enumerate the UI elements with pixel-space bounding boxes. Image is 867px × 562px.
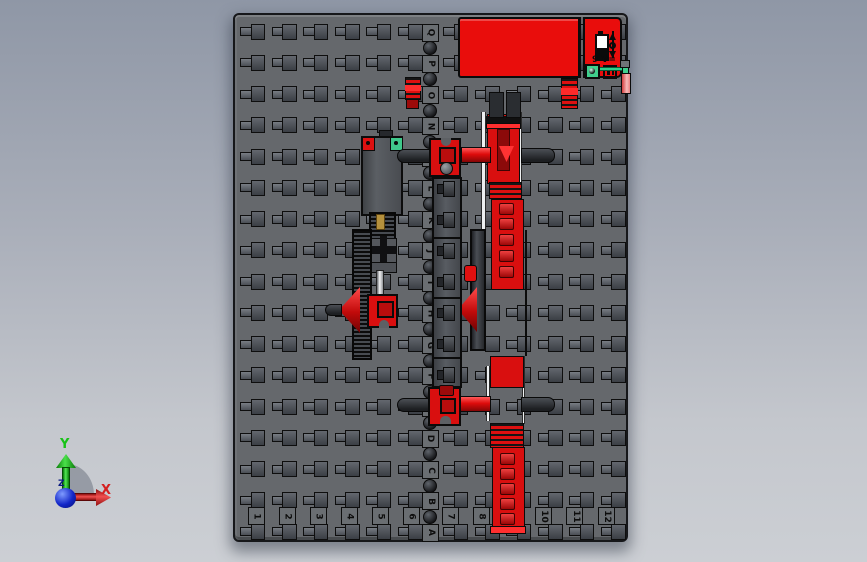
axle-red-top[interactable]	[461, 147, 491, 163]
plate-slot	[443, 87, 468, 102]
plate-slot	[303, 274, 328, 289]
plate-slot	[335, 212, 360, 227]
column-label-tile: 2	[279, 507, 296, 525]
plate-slot	[601, 180, 626, 195]
y-axis-label: Y	[60, 438, 69, 451]
plate-slot	[335, 462, 360, 477]
beam-stud	[443, 181, 455, 197]
grid-hole	[423, 479, 437, 493]
plate-slot	[303, 462, 328, 477]
strip-gear-lower[interactable]	[490, 423, 524, 448]
plate-slot	[569, 337, 594, 352]
plate-slot	[601, 399, 626, 414]
plate-slot	[569, 462, 594, 477]
plate-slot	[538, 493, 563, 508]
plate-slot	[601, 368, 626, 383]
plate-slot	[538, 87, 563, 102]
plate-slot	[335, 493, 360, 508]
row-label-tile: C	[422, 461, 439, 479]
plate-slot	[335, 399, 360, 414]
plate-slot	[569, 243, 594, 258]
plate-slot	[272, 24, 297, 39]
plate-slot	[272, 274, 297, 289]
rack-stud	[500, 483, 515, 495]
plate-slot	[538, 337, 563, 352]
plate-slot	[601, 118, 626, 133]
row-label-tile: A	[422, 524, 439, 542]
bearing-block-bottom[interactable]	[428, 387, 461, 426]
strip-end-bar[interactable]	[490, 526, 526, 534]
plate-slot	[538, 462, 563, 477]
plate-slot	[240, 87, 265, 102]
plate-slot	[240, 212, 265, 227]
beam-stud	[443, 243, 455, 259]
plate-slot	[272, 87, 297, 102]
axle-bottom-right[interactable]	[521, 397, 555, 412]
plate-slot	[272, 118, 297, 133]
plate-slot	[398, 118, 423, 133]
plate-slot	[272, 399, 297, 414]
plate-slot	[335, 430, 360, 445]
plate-slot	[366, 462, 391, 477]
plate-slot	[538, 212, 563, 227]
plate-slot	[272, 149, 297, 164]
plate-slot	[538, 180, 563, 195]
girder-edge-line	[525, 230, 527, 356]
plate-slot	[538, 274, 563, 289]
plate-slot	[303, 337, 328, 352]
plate-slot	[601, 462, 626, 477]
plate-slot	[335, 24, 360, 39]
rack-stud	[500, 453, 515, 465]
strip-gear-upper[interactable]	[489, 182, 522, 199]
rack-stud	[500, 468, 515, 480]
plate-slot	[443, 462, 468, 477]
plate-slot	[303, 493, 328, 508]
plate-slot	[272, 212, 297, 227]
plate-slot	[240, 243, 265, 258]
plate-slot	[398, 368, 423, 383]
grid-hole	[423, 104, 437, 118]
plate-slot	[601, 243, 626, 258]
plate-slot	[569, 180, 594, 195]
axle-red-bottom[interactable]	[460, 396, 491, 412]
plate-slot	[443, 118, 468, 133]
z-axis-sphere[interactable]	[55, 488, 76, 508]
plate-slot	[240, 462, 265, 477]
beam-stud	[443, 336, 455, 352]
plate-slot	[366, 24, 391, 39]
plate-slot	[335, 149, 360, 164]
plate-slot	[240, 368, 265, 383]
plate-slot	[272, 462, 297, 477]
plate-slot	[335, 118, 360, 133]
plate-slot	[398, 274, 423, 289]
plate-slot	[398, 305, 423, 320]
plate-slot	[601, 149, 626, 164]
plate-slot	[538, 243, 563, 258]
plate-slot	[303, 212, 328, 227]
plate-slot	[303, 524, 328, 539]
coupling-brass	[376, 214, 385, 230]
plate-slot	[240, 337, 265, 352]
column-label-tile: 1	[248, 507, 265, 525]
plate-slot	[303, 55, 328, 70]
plate-slot	[240, 180, 265, 195]
plate-slot	[366, 493, 391, 508]
plate-slot	[272, 337, 297, 352]
grid-hole	[423, 510, 437, 524]
plate-slot	[240, 118, 265, 133]
disc-gear-edge[interactable]	[470, 229, 486, 351]
plate-slot	[272, 368, 297, 383]
plate-slot	[398, 337, 423, 352]
column-label-tile: 10	[535, 507, 552, 525]
plate-slot	[240, 55, 265, 70]
column-label-tile: 4	[341, 507, 358, 525]
plate-slot	[538, 118, 563, 133]
row-label-tile: D	[422, 430, 439, 448]
column-label-tile: 11	[566, 507, 583, 525]
plate-slot	[601, 524, 626, 539]
plate-slot	[506, 305, 531, 320]
rack-stud	[500, 498, 515, 510]
plate-slot	[569, 118, 594, 133]
plate-slot	[272, 493, 297, 508]
plate-slot	[601, 337, 626, 352]
top-beam-left[interactable]	[489, 92, 504, 118]
row-label-tile: N	[422, 117, 439, 135]
plate-slot	[398, 430, 423, 445]
plate-slot	[303, 243, 328, 258]
plate-slot	[240, 399, 265, 414]
plate-slot	[303, 87, 328, 102]
plate-slot	[538, 524, 563, 539]
rack-stud	[499, 203, 514, 215]
small-gear-band	[405, 85, 421, 91]
plate-slot	[366, 368, 391, 383]
plate-slot	[366, 87, 391, 102]
column-label-tile: 6	[403, 507, 420, 525]
plate-slot	[240, 493, 265, 508]
plate-slot	[240, 274, 265, 289]
plate-slot	[601, 305, 626, 320]
beam-stud	[443, 274, 455, 290]
battery-box-divider	[578, 17, 581, 78]
plate-slot	[303, 368, 328, 383]
axle-bottom-left[interactable]	[397, 398, 429, 412]
rack-stud	[500, 513, 515, 525]
plate-slot	[366, 55, 391, 70]
plate-slot	[569, 368, 594, 383]
plate-slot	[569, 305, 594, 320]
plate-slot	[335, 55, 360, 70]
rack-strip-lowermid[interactable]	[490, 356, 524, 388]
plate-slot	[240, 305, 265, 320]
plate-slot	[272, 524, 297, 539]
plate-slot	[335, 368, 360, 383]
axle-top-right[interactable]	[521, 148, 555, 163]
plate-slot	[569, 399, 594, 414]
plate-slot	[366, 524, 391, 539]
rack-stud	[499, 250, 514, 262]
top-beam-right[interactable]	[506, 92, 521, 118]
plate-slot	[443, 430, 468, 445]
plate-slot	[272, 180, 297, 195]
bearing-block-top[interactable]	[429, 138, 461, 177]
plate-slot	[303, 399, 328, 414]
plate-slot	[398, 243, 423, 258]
power-connector-green[interactable]	[585, 64, 600, 79]
plate-slot	[538, 430, 563, 445]
plate-slot	[272, 243, 297, 258]
bearing-block-mid[interactable]	[367, 294, 398, 328]
crank-knob[interactable]	[464, 265, 477, 282]
pinion-gear-band	[561, 88, 578, 95]
plate-slot	[366, 399, 391, 414]
battery-box-body[interactable]	[458, 17, 580, 78]
plate-slot	[538, 305, 563, 320]
column-label-tile: 3	[310, 507, 327, 525]
gearbox-axle-h	[372, 246, 396, 254]
plate-slot	[506, 337, 531, 352]
plate-slot	[538, 368, 563, 383]
plate-slot	[303, 149, 328, 164]
small-gear-tab	[406, 99, 419, 109]
plate-slot	[303, 118, 328, 133]
beam-stud	[443, 305, 455, 321]
plate-slot	[443, 524, 468, 539]
plate-slot	[335, 180, 360, 195]
plate-slot	[303, 430, 328, 445]
plate-slot	[398, 493, 423, 508]
plate-slot	[398, 55, 423, 70]
rack-stud	[499, 218, 514, 230]
plate-slot	[303, 24, 328, 39]
plate-slot	[272, 55, 297, 70]
plate-slot	[240, 149, 265, 164]
beam-stud	[443, 212, 455, 228]
rack-stud	[499, 234, 514, 246]
metal-rod[interactable]	[376, 270, 384, 297]
plate-slot	[569, 430, 594, 445]
column-label-tile: 5	[372, 507, 389, 525]
row-label-tile: B	[422, 492, 439, 510]
plate-slot	[569, 493, 594, 508]
plate-slot	[366, 430, 391, 445]
plate-slot	[569, 274, 594, 289]
row-label-tile: O	[422, 86, 439, 104]
plate-slot	[272, 305, 297, 320]
plate-slot	[601, 274, 626, 289]
plate-slot	[443, 493, 468, 508]
cad-viewport: ABCDEFGHIJKLMNOPQ123456789101112	[0, 0, 867, 562]
plate-slot	[398, 462, 423, 477]
beam-stud	[443, 367, 455, 383]
y-axis-arrow[interactable]	[56, 454, 76, 468]
plate-slot	[335, 524, 360, 539]
plate-slot	[569, 149, 594, 164]
plate-slot	[303, 180, 328, 195]
plate-slot	[272, 430, 297, 445]
plate-slot	[240, 524, 265, 539]
plate-slot	[601, 212, 626, 227]
x-axis-label: X	[101, 484, 111, 497]
plate-slot	[601, 430, 626, 445]
row-label-tile: Q	[422, 24, 439, 42]
row-label-tile: P	[422, 55, 439, 73]
plate-slot	[569, 212, 594, 227]
plate-slot	[240, 430, 265, 445]
axle-stub-left[interactable]	[325, 304, 342, 316]
motor-clip-red[interactable]	[362, 137, 375, 151]
plate-slot	[398, 24, 423, 39]
plate-slot	[601, 493, 626, 508]
plate-slot	[240, 24, 265, 39]
plate-slot	[335, 87, 360, 102]
plug-body[interactable]	[621, 73, 631, 94]
rack-stud	[499, 266, 514, 278]
plate-slot	[569, 524, 594, 539]
column-label-tile: 8	[473, 507, 490, 525]
axle-top-left[interactable]	[397, 149, 430, 163]
plate-slot	[398, 524, 423, 539]
column-label-tile: 7	[442, 507, 459, 525]
column-label-tile: 12	[598, 507, 615, 525]
